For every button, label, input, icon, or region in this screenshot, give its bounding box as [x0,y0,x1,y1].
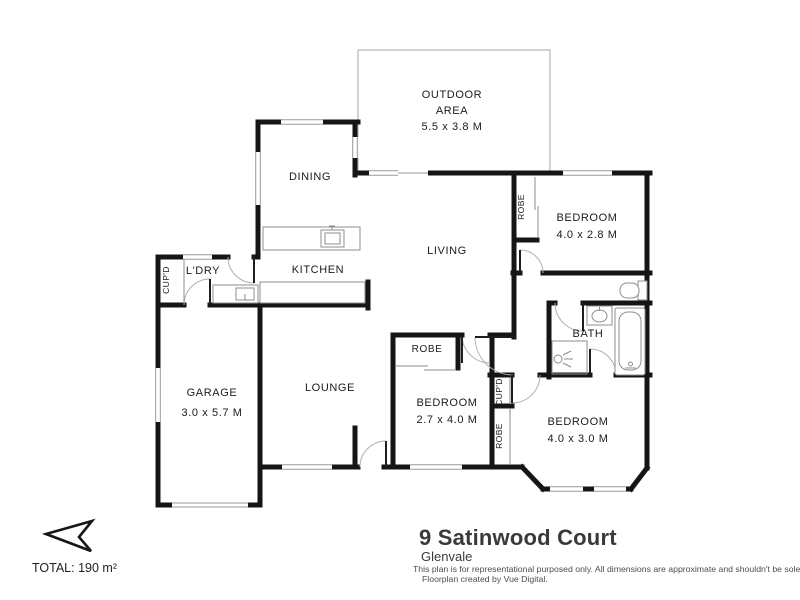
window-dining-top [281,120,323,125]
vanity-sink [587,306,612,325]
kitchen-counter [260,282,365,303]
label-bedroom2: BEDROOM [547,416,608,428]
door-bath-north [555,303,583,331]
kitchen-island [263,226,360,250]
label-bedroom2-dims: 4.0 x 3.0 M [547,433,608,445]
shower [552,341,587,374]
label-garage-dims: 3.0 x 5.7 M [181,407,242,419]
address-title: 9 Satinwood Court [419,525,617,550]
label-bath: BATH [573,328,604,340]
floorplan-canvas: OUTDOOR AREA 5.5 x 3.8 M DINING LIVING K… [0,0,800,600]
label-outdoor-1: OUTDOOR [422,89,482,101]
window-bedroom3-bottom [410,465,462,470]
label-hall-cupboard: CUP'D [494,378,504,406]
label-bedroom3-robe: ROBE [412,344,443,355]
title-block: 9 Satinwood Court Glenvale This plan is … [413,525,800,584]
label-bedroom1-robe: ROBE [516,194,526,220]
label-outdoor-2: AREA [436,105,468,117]
door-bedroom2 [512,375,540,403]
window-dining-right [353,137,358,158]
door-bedroom3 [462,335,490,363]
door-bedroom1 [520,250,543,273]
door-bath-south [590,349,616,375]
door-garage-laundry [184,279,210,305]
garage-door [172,503,248,507]
label-kitchen: KITCHEN [292,264,344,276]
window-dining-left [256,152,261,205]
label-laundry-cupboard: CUP'D [161,266,171,294]
window-lounge-bottom [282,465,332,470]
bay-window-left [550,487,583,492]
label-hall-robe: ROBE [494,423,504,449]
window-living-top [369,171,428,176]
disclaimer-line1: This plan is for representational purpos… [413,564,800,574]
walls [158,122,650,505]
bay-window-right [594,487,626,492]
bedroom1-robe-front [535,177,538,238]
label-garage: GARAGE [187,387,238,399]
window-bedroom1-top [563,171,612,176]
label-outdoor-dims: 5.5 x 3.8 M [421,121,482,133]
disclaimer-line2: Floorplan created by Vue Digital. [422,574,548,584]
door-front-entry [360,441,386,467]
label-dining: DINING [289,171,331,183]
laundry-counter [213,285,258,303]
toilet [620,281,647,300]
window-laundry-top [183,255,212,260]
label-bedroom1-dims: 4.0 x 2.8 M [556,229,617,241]
floorplan-page: OUTDOOR AREA 5.5 x 3.8 M DINING LIVING K… [0,0,800,600]
bathtub [615,308,645,375]
label-living: LIVING [427,245,467,257]
label-lounge: LOUNGE [305,382,355,394]
label-bedroom3-dims: 2.7 x 4.0 M [416,414,477,426]
suburb-subtitle: Glenvale [421,549,472,564]
total-area-label: TOTAL: 190 m² [32,561,117,575]
window-garage-left [156,368,161,422]
door-laundry [228,257,254,283]
label-laundry: L'DRY [186,265,220,277]
label-bedroom1: BEDROOM [556,212,617,224]
label-bedroom3: BEDROOM [416,397,477,409]
bedroom3-robe-front [396,366,456,370]
north-arrow-icon [46,521,92,551]
